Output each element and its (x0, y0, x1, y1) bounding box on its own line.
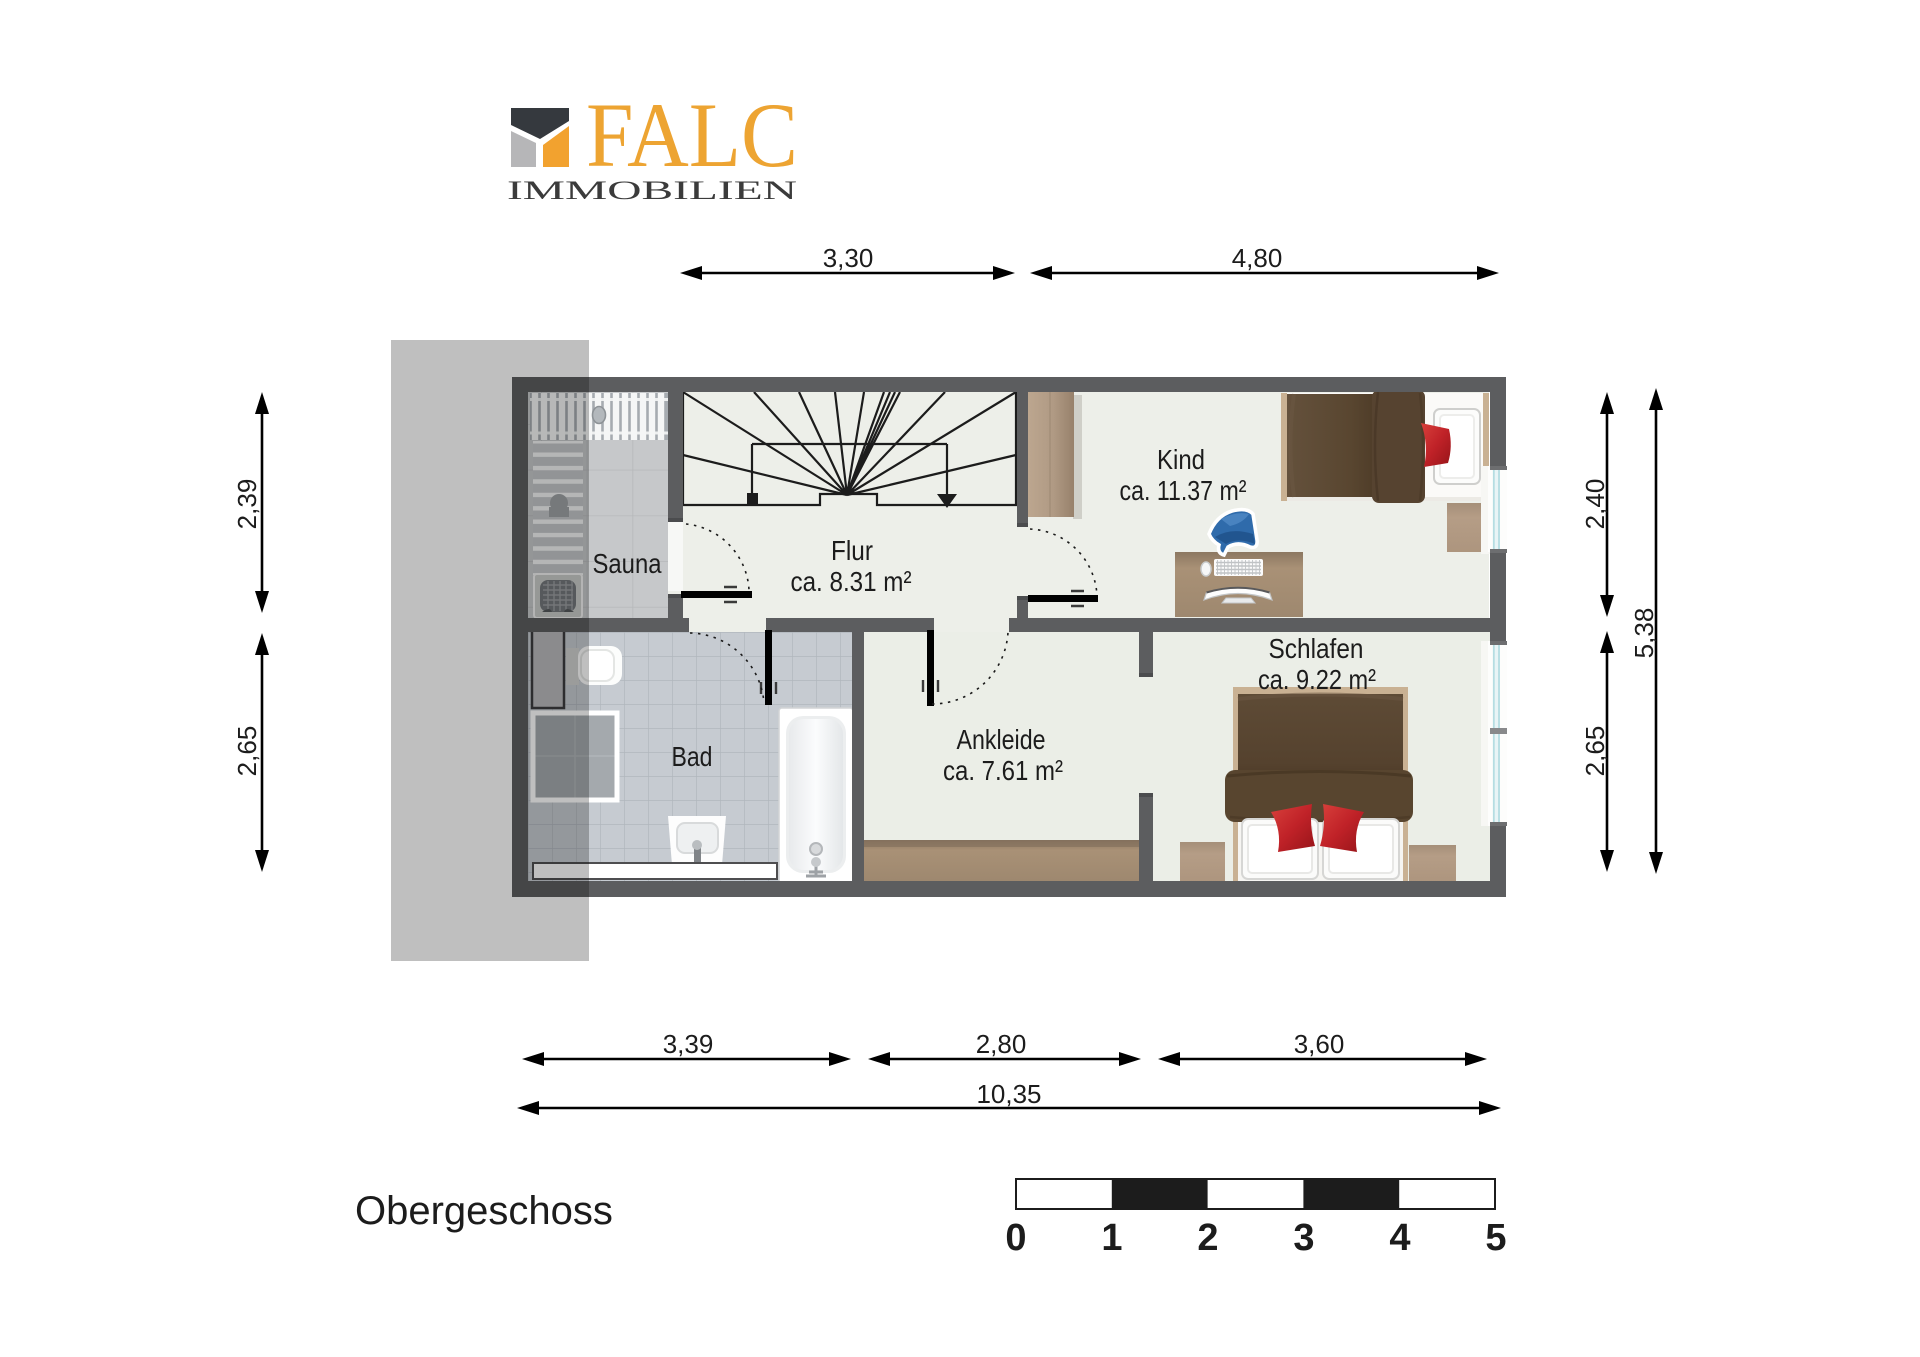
svg-text:IMMOBILIEN: IMMOBILIEN (507, 176, 797, 205)
svg-text:ca. 9.22 m²: ca. 9.22 m² (1258, 664, 1376, 695)
svg-text:Sauna: Sauna (593, 548, 662, 579)
svg-text:ca. 7.61 m²: ca. 7.61 m² (943, 755, 1063, 786)
svg-text:10,35: 10,35 (976, 1079, 1041, 1109)
svg-text:1: 1 (1101, 1217, 1122, 1259)
svg-text:4: 4 (1389, 1217, 1410, 1259)
svg-text:2,65: 2,65 (1580, 726, 1610, 777)
svg-text:2,65: 2,65 (232, 726, 262, 777)
svg-text:Obergeschoss: Obergeschoss (355, 1189, 613, 1233)
svg-text:Ankleide: Ankleide (957, 724, 1046, 755)
svg-text:2,40: 2,40 (1580, 479, 1610, 530)
svg-text:5: 5 (1485, 1217, 1506, 1259)
svg-text:Kind: Kind (1157, 444, 1205, 475)
svg-text:2,39: 2,39 (232, 479, 262, 530)
svg-text:3,39: 3,39 (663, 1029, 714, 1059)
svg-text:3,30: 3,30 (823, 243, 874, 273)
svg-text:2: 2 (1197, 1217, 1218, 1259)
svg-text:5,38: 5,38 (1629, 608, 1659, 659)
svg-text:0: 0 (1005, 1217, 1026, 1259)
svg-text:3,60: 3,60 (1294, 1029, 1345, 1059)
svg-text:Bad: Bad (672, 741, 713, 772)
svg-text:4,80: 4,80 (1232, 243, 1283, 273)
svg-text:3: 3 (1293, 1217, 1314, 1259)
svg-text:Flur: Flur (831, 535, 873, 566)
svg-text:2,80: 2,80 (976, 1029, 1027, 1059)
svg-text:ca. 8.31 m²: ca. 8.31 m² (791, 566, 912, 597)
svg-text:FALC: FALC (586, 84, 798, 186)
svg-text:Schlafen: Schlafen (1269, 633, 1364, 664)
svg-text:ca. 11.37 m²: ca. 11.37 m² (1120, 475, 1247, 506)
